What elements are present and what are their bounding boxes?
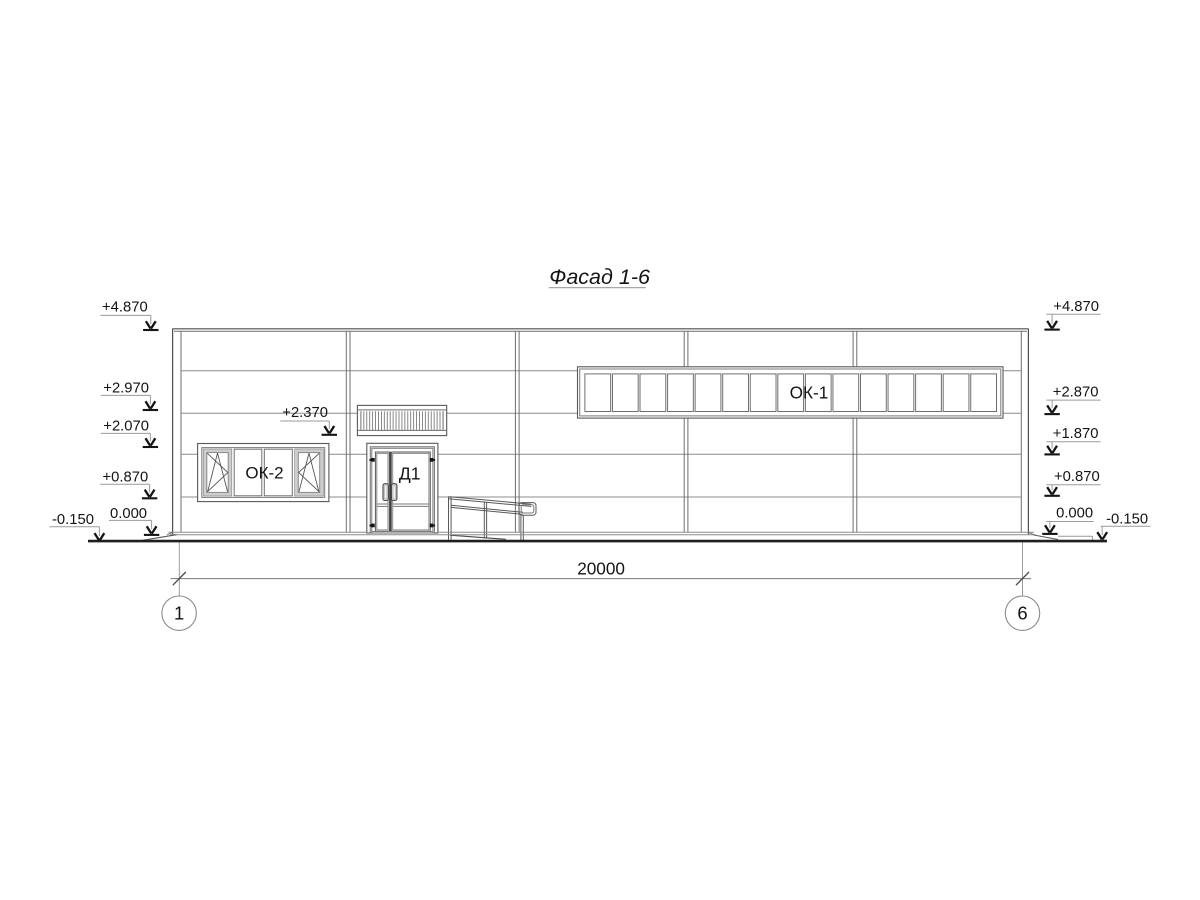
svg-text:ОК-1: ОК-1 <box>790 382 829 402</box>
svg-text:-0.150: -0.150 <box>1106 512 1148 528</box>
svg-text:Д1: Д1 <box>399 463 421 483</box>
svg-text:Фасад 1-6: Фасад 1-6 <box>549 265 650 289</box>
svg-text:+2.070: +2.070 <box>103 419 149 435</box>
svg-text:+2.970: +2.970 <box>103 380 149 396</box>
svg-text:20000: 20000 <box>577 558 625 578</box>
svg-text:+4.870: +4.870 <box>102 299 148 315</box>
svg-text:0.000: 0.000 <box>1056 505 1093 521</box>
svg-text:1: 1 <box>174 603 184 624</box>
svg-text:+2.370: +2.370 <box>282 405 328 421</box>
svg-text:+0.870: +0.870 <box>1054 469 1100 485</box>
svg-text:+0.870: +0.870 <box>103 469 149 485</box>
svg-text:0.000: 0.000 <box>110 506 147 522</box>
svg-text:+1.870: +1.870 <box>1053 426 1099 442</box>
svg-text:+4.870: +4.870 <box>1053 299 1099 315</box>
svg-text:+2.870: +2.870 <box>1053 385 1099 401</box>
svg-text:6: 6 <box>1017 603 1027 624</box>
svg-text:ОК-2: ОК-2 <box>245 463 283 482</box>
svg-text:-0.150: -0.150 <box>52 512 94 528</box>
